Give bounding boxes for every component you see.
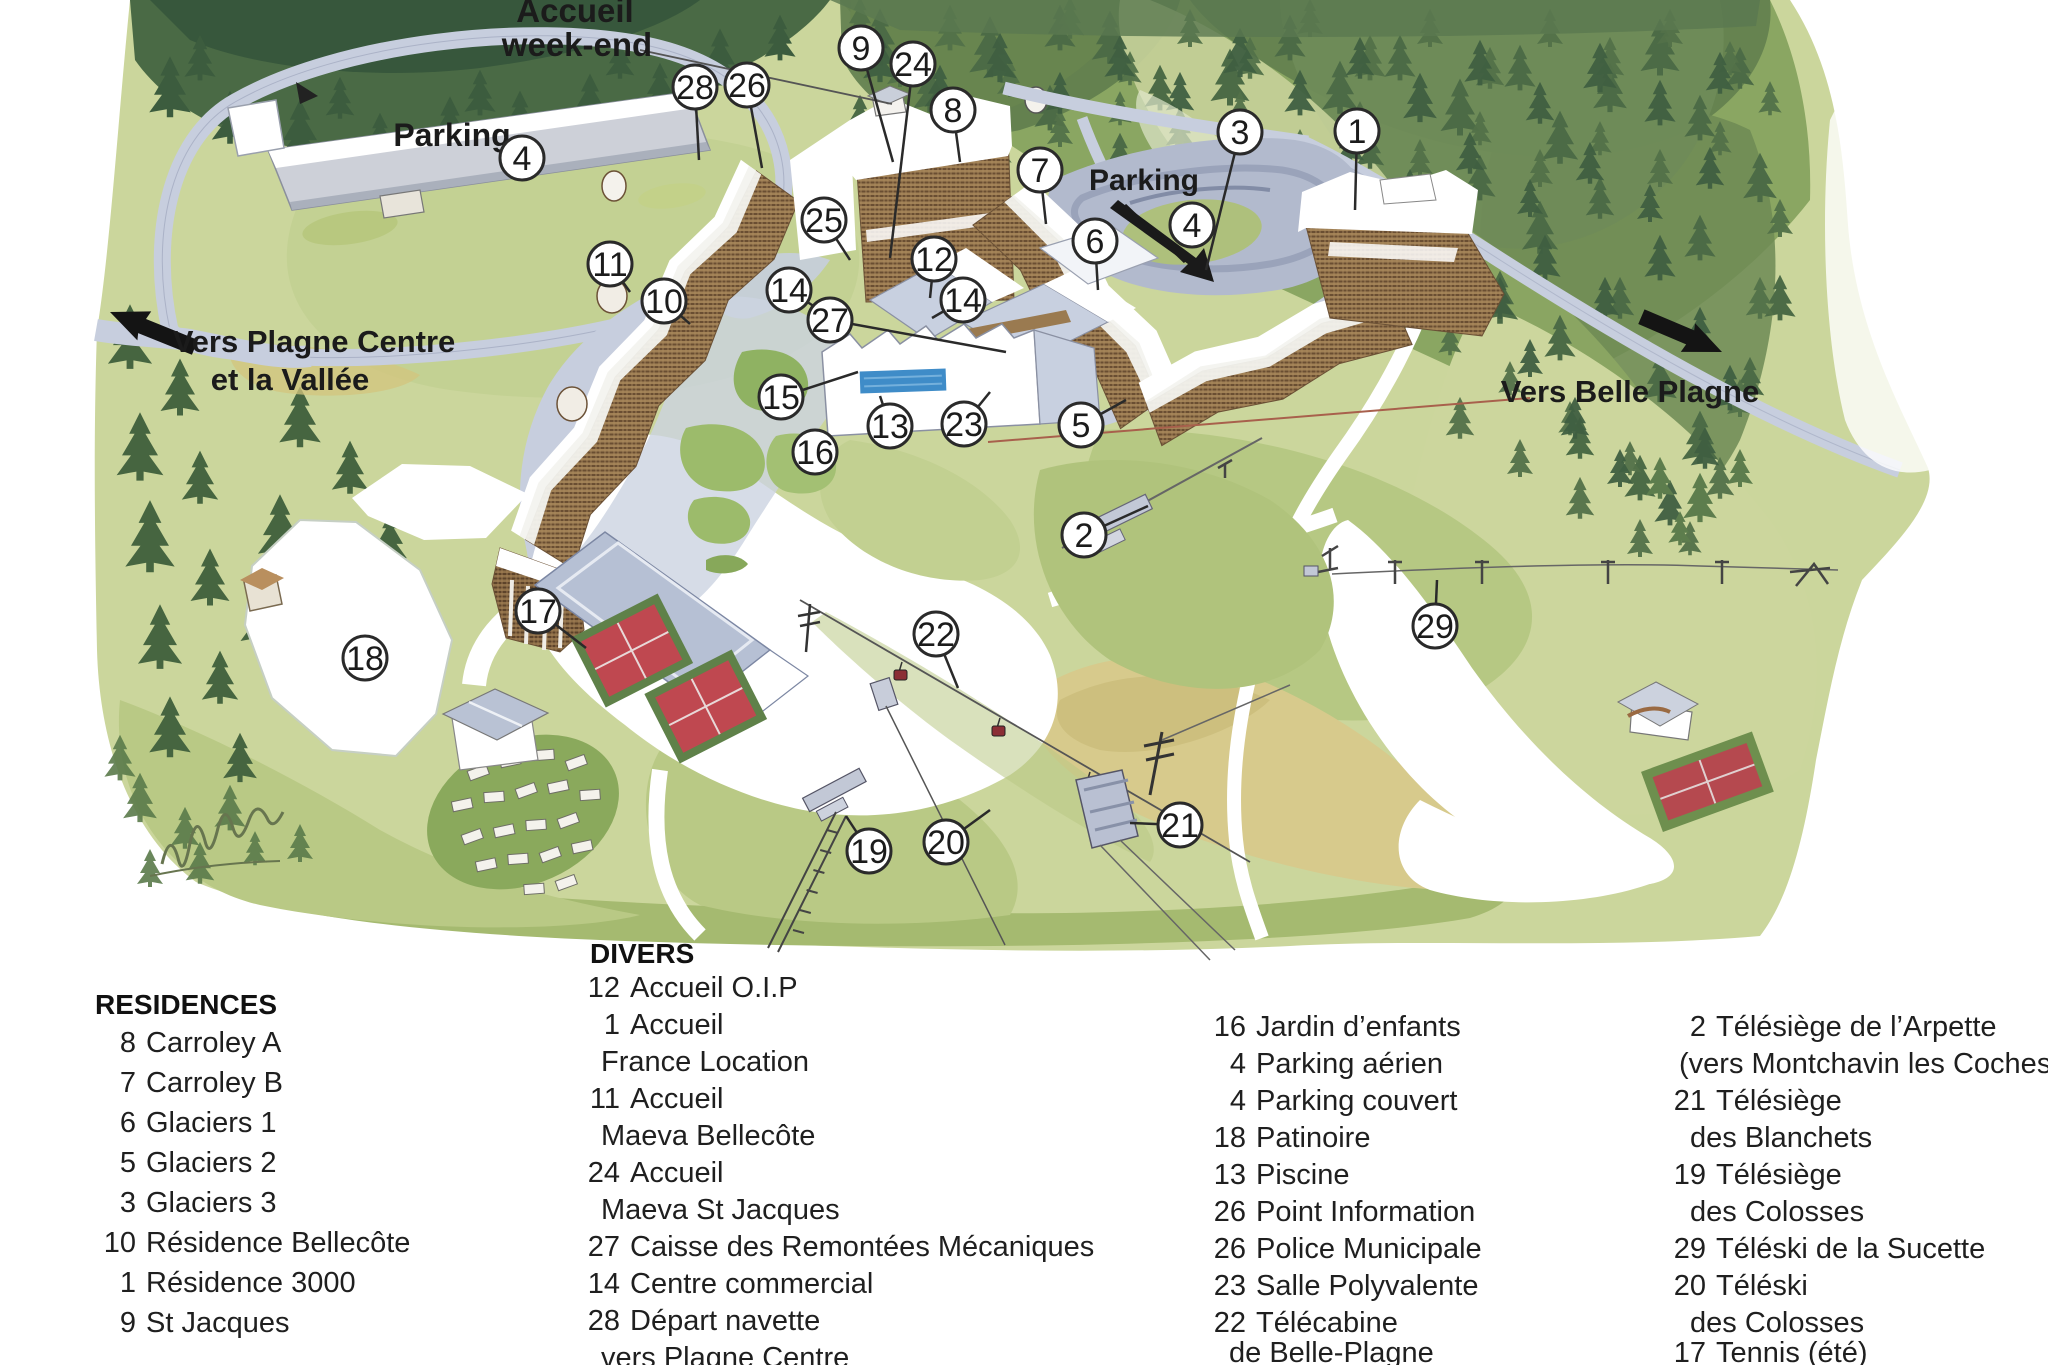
svg-text:Téléski: Téléski bbox=[1716, 1270, 1808, 1302]
svg-text:11: 11 bbox=[590, 1083, 620, 1115]
svg-text:23: 23 bbox=[945, 406, 983, 444]
svg-text:7: 7 bbox=[120, 1067, 136, 1099]
svg-text:Carroley A: Carroley A bbox=[146, 1027, 282, 1059]
svg-text:21: 21 bbox=[1674, 1085, 1706, 1117]
svg-text:Glaciers 1: Glaciers 1 bbox=[146, 1107, 277, 1139]
svg-text:1: 1 bbox=[1348, 113, 1367, 151]
svg-text:des Colosses: des Colosses bbox=[1690, 1196, 1864, 1228]
svg-text:20: 20 bbox=[1674, 1270, 1706, 1302]
svg-text:11: 11 bbox=[592, 246, 627, 284]
svg-text:19: 19 bbox=[850, 833, 888, 871]
svg-text:Parking: Parking bbox=[393, 117, 510, 153]
svg-text:Jardin d’enfants: Jardin d’enfants bbox=[1256, 1011, 1461, 1043]
svg-text:24: 24 bbox=[588, 1157, 620, 1189]
svg-text:et la Vallée: et la Vallée bbox=[211, 362, 370, 397]
svg-text:Parking couvert: Parking couvert bbox=[1256, 1085, 1458, 1117]
svg-text:Glaciers 3: Glaciers 3 bbox=[146, 1187, 277, 1219]
svg-text:4: 4 bbox=[1230, 1048, 1246, 1080]
svg-text:Téléski de la Sucette: Téléski de la Sucette bbox=[1716, 1233, 1985, 1265]
svg-text:10: 10 bbox=[104, 1227, 136, 1259]
svg-text:Maeva St Jacques: Maeva St Jacques bbox=[601, 1194, 840, 1226]
svg-text:27: 27 bbox=[588, 1231, 620, 1263]
svg-text:13: 13 bbox=[871, 408, 909, 446]
svg-text:Patinoire: Patinoire bbox=[1256, 1122, 1370, 1154]
svg-text:des Colosses: des Colosses bbox=[1690, 1307, 1864, 1339]
svg-text:6: 6 bbox=[1086, 223, 1105, 261]
svg-text:Police Municipale: Police Municipale bbox=[1256, 1233, 1482, 1265]
svg-text:4: 4 bbox=[513, 140, 532, 178]
svg-text:28: 28 bbox=[588, 1305, 620, 1337]
svg-text:Parking aérien: Parking aérien bbox=[1256, 1048, 1443, 1080]
svg-text:1: 1 bbox=[604, 1009, 620, 1041]
svg-text:Caisse des Remontées Mécanique: Caisse des Remontées Mécaniques bbox=[630, 1231, 1094, 1263]
svg-text:18: 18 bbox=[1214, 1122, 1246, 1154]
svg-text:Centre commercial: Centre commercial bbox=[630, 1268, 873, 1300]
svg-text:12: 12 bbox=[588, 972, 620, 1004]
svg-text:Point Information: Point Information bbox=[1256, 1196, 1475, 1228]
svg-text:15: 15 bbox=[762, 379, 800, 417]
svg-text:7: 7 bbox=[1031, 152, 1050, 190]
svg-text:2: 2 bbox=[1690, 1011, 1706, 1043]
svg-text:week-end: week-end bbox=[501, 26, 652, 63]
svg-text:Glaciers 2: Glaciers 2 bbox=[146, 1147, 277, 1179]
svg-text:vers Plagne Centre: vers Plagne Centre bbox=[601, 1342, 849, 1365]
svg-text:8: 8 bbox=[944, 92, 963, 130]
svg-text:Télésiège de l’Arpette: Télésiège de l’Arpette bbox=[1716, 1011, 1997, 1043]
svg-text:9: 9 bbox=[852, 30, 871, 68]
svg-text:9: 9 bbox=[120, 1307, 136, 1339]
svg-text:5: 5 bbox=[120, 1147, 136, 1179]
svg-text:Accueil O.I.P: Accueil O.I.P bbox=[630, 972, 798, 1004]
svg-text:2: 2 bbox=[1075, 517, 1094, 555]
svg-text:26: 26 bbox=[1214, 1196, 1246, 1228]
svg-text:Maeva Bellecôte: Maeva Bellecôte bbox=[601, 1120, 815, 1152]
svg-text:Résidence Bellecôte: Résidence Bellecôte bbox=[146, 1227, 410, 1259]
svg-text:3: 3 bbox=[120, 1187, 136, 1219]
svg-text:Carroley B: Carroley B bbox=[146, 1067, 283, 1099]
svg-text:DIVERS: DIVERS bbox=[590, 938, 694, 969]
svg-text:des Blanchets: des Blanchets bbox=[1690, 1122, 1872, 1154]
svg-text:29: 29 bbox=[1416, 608, 1454, 646]
svg-text:24: 24 bbox=[894, 46, 932, 84]
svg-text:(vers Montchavin les Coches): (vers Montchavin les Coches) bbox=[1679, 1048, 2048, 1080]
svg-text:26: 26 bbox=[1214, 1233, 1246, 1265]
svg-text:22: 22 bbox=[1214, 1307, 1246, 1339]
svg-text:22: 22 bbox=[917, 616, 955, 654]
svg-text:Départ navette: Départ navette bbox=[630, 1305, 820, 1337]
svg-text:St Jacques: St Jacques bbox=[146, 1307, 289, 1339]
svg-text:Résidence 3000: Résidence 3000 bbox=[146, 1267, 356, 1299]
svg-text:28: 28 bbox=[676, 69, 714, 107]
svg-text:4: 4 bbox=[1183, 207, 1202, 245]
svg-text:17: 17 bbox=[519, 593, 557, 631]
svg-text:4: 4 bbox=[1230, 1085, 1246, 1117]
svg-text:13: 13 bbox=[1214, 1159, 1246, 1191]
svg-text:23: 23 bbox=[1214, 1270, 1246, 1302]
svg-text:16: 16 bbox=[796, 434, 834, 472]
svg-text:18: 18 bbox=[346, 640, 384, 678]
svg-text:14: 14 bbox=[944, 282, 982, 320]
svg-text:Vers Belle Plagne: Vers Belle Plagne bbox=[1501, 374, 1759, 409]
svg-text:RESIDENCES: RESIDENCES bbox=[95, 989, 277, 1020]
svg-text:de Belle-Plagne: de Belle-Plagne bbox=[1229, 1337, 1434, 1365]
svg-text:Vers Plagne Centre: Vers Plagne Centre bbox=[173, 324, 456, 359]
svg-text:Accueil: Accueil bbox=[516, 0, 633, 29]
svg-text:Télésiège: Télésiège bbox=[1716, 1159, 1842, 1191]
svg-text:Télésiège: Télésiège bbox=[1716, 1085, 1842, 1117]
svg-text:5: 5 bbox=[1072, 407, 1091, 445]
svg-text:20: 20 bbox=[927, 824, 965, 862]
svg-text:Piscine: Piscine bbox=[1256, 1159, 1350, 1191]
svg-text:3: 3 bbox=[1231, 114, 1250, 152]
svg-text:16: 16 bbox=[1214, 1011, 1246, 1043]
svg-text:19: 19 bbox=[1674, 1159, 1706, 1191]
svg-text:25: 25 bbox=[805, 202, 843, 240]
svg-text:10: 10 bbox=[645, 283, 683, 321]
svg-text:1: 1 bbox=[120, 1267, 136, 1299]
svg-text:14: 14 bbox=[588, 1268, 620, 1300]
svg-text:17: 17 bbox=[1674, 1337, 1706, 1365]
svg-text:Accueil: Accueil bbox=[630, 1083, 724, 1115]
svg-text:Télécabine: Télécabine bbox=[1256, 1307, 1398, 1339]
svg-text:France Location: France Location bbox=[601, 1046, 809, 1078]
svg-text:Parking: Parking bbox=[1089, 164, 1199, 197]
svg-text:27: 27 bbox=[811, 302, 849, 340]
svg-text:Salle Polyvalente: Salle Polyvalente bbox=[1256, 1270, 1478, 1302]
svg-text:12: 12 bbox=[915, 241, 953, 279]
svg-text:26: 26 bbox=[728, 67, 766, 105]
svg-text:8: 8 bbox=[120, 1027, 136, 1059]
svg-text:Tennis (été): Tennis (été) bbox=[1716, 1337, 1868, 1365]
svg-text:14: 14 bbox=[770, 272, 808, 310]
svg-text:29: 29 bbox=[1674, 1233, 1706, 1265]
svg-text:Accueil: Accueil bbox=[630, 1009, 724, 1041]
svg-text:6: 6 bbox=[120, 1107, 136, 1139]
svg-text:Accueil: Accueil bbox=[630, 1157, 724, 1189]
svg-text:21: 21 bbox=[1161, 807, 1199, 845]
